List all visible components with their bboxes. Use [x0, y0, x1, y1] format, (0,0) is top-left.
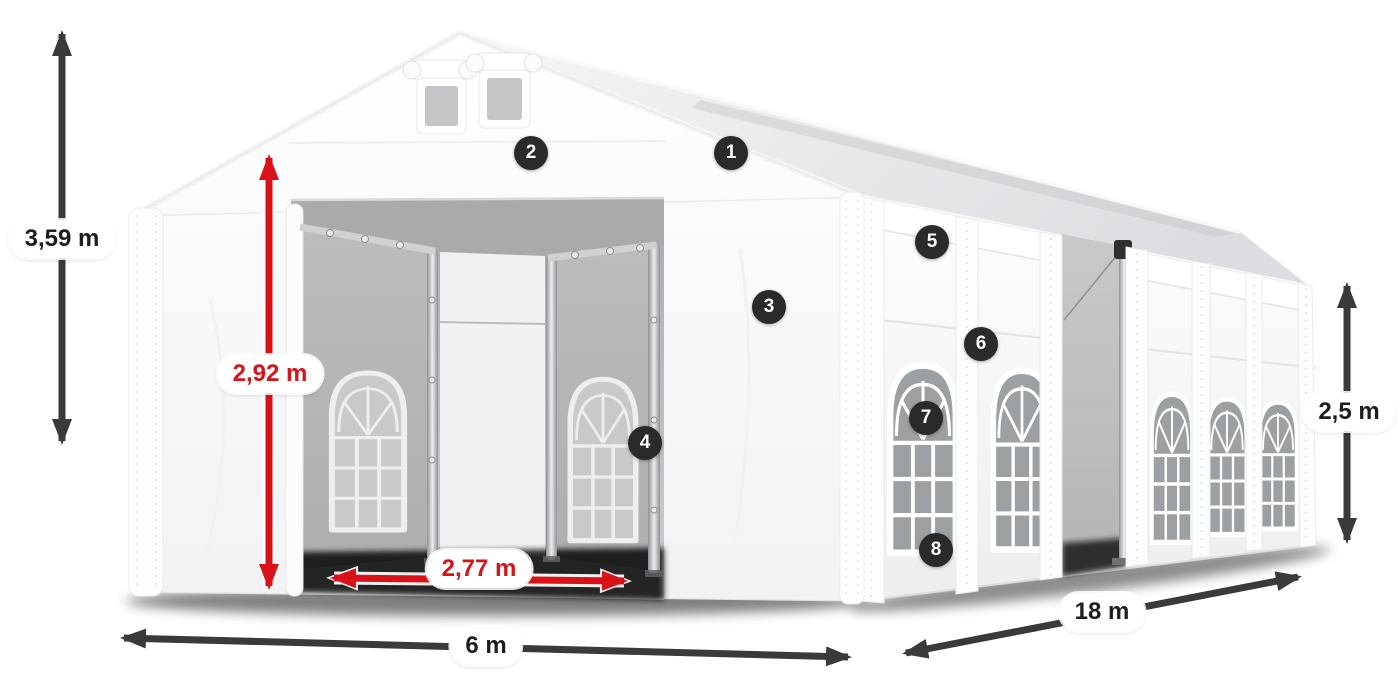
callout-badge-2[interactable]: 2: [514, 136, 548, 170]
dimension-label-wall-height: 2,5 m: [1303, 393, 1394, 431]
dimension-label-side-length: 18 m: [1060, 593, 1145, 631]
diagram-canvas: 3,59 m 2,92 m 2,77 m 6 m 18 m 2,5 m 1 2 …: [0, 0, 1400, 700]
dimension-label-entrance-width: 2,77 m: [427, 550, 532, 588]
callout-badge-3[interactable]: 3: [752, 290, 786, 324]
dimension-label-entrance-height: 2,92 m: [218, 355, 323, 393]
callout-badge-8[interactable]: 8: [919, 533, 953, 567]
dimension-arrows: [0, 0, 1400, 700]
callout-badge-7[interactable]: 7: [909, 401, 943, 435]
callout-badge-6[interactable]: 6: [964, 327, 998, 361]
callout-badge-4[interactable]: 4: [628, 426, 662, 460]
dimension-label-total-height: 3,59 m: [10, 220, 115, 258]
callout-badge-5[interactable]: 5: [915, 225, 949, 259]
dimension-label-front-width: 6 m: [450, 627, 521, 665]
callout-badge-1[interactable]: 1: [714, 136, 748, 170]
